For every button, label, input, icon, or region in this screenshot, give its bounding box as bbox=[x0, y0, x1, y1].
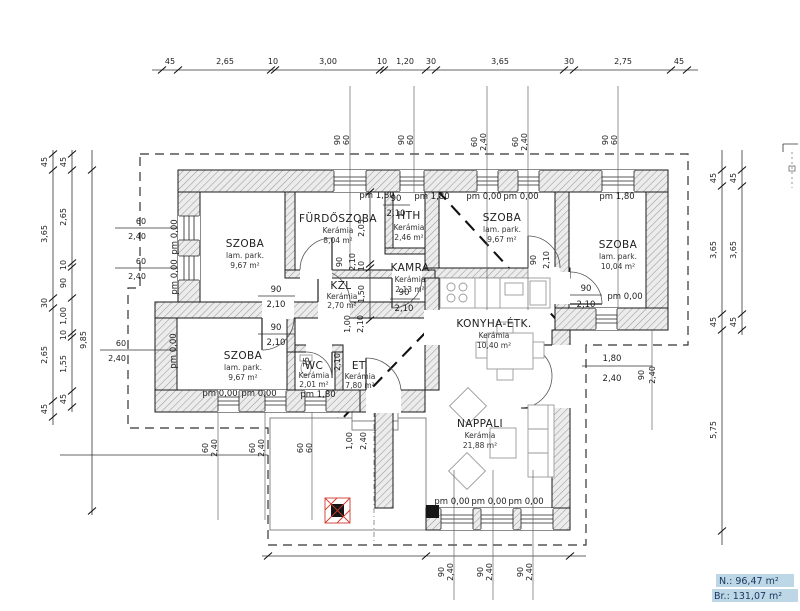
level-mark: pm 0,00 bbox=[508, 497, 543, 507]
terrace bbox=[270, 412, 426, 545]
room-area: 2,46 m² bbox=[394, 233, 423, 242]
dim-label: 9,85 bbox=[79, 331, 88, 349]
door-tag: 2,10 bbox=[267, 338, 286, 348]
dim-label: 1,00 bbox=[59, 307, 68, 325]
floor-plan-page: 45 2,65 10 3,00 10 1,20 30 3,65 30 2,75 … bbox=[0, 0, 800, 611]
room-name: KAMRA bbox=[391, 262, 430, 274]
dimension-chain-left-outer: 45 3,65 30 2,65 45 bbox=[40, 150, 57, 425]
room-area: 2,13 m² bbox=[395, 285, 424, 294]
window-tag: 90 bbox=[476, 567, 485, 577]
window-tag: 60 bbox=[406, 135, 415, 145]
room-finish: lam. park. bbox=[483, 225, 521, 234]
window-tag: 2,40 bbox=[525, 563, 534, 581]
room-area: 21,88 m² bbox=[463, 441, 497, 450]
door-tag: 2,10 bbox=[333, 353, 342, 371]
room-hth: HTH Kerámia 2,46 m² bbox=[394, 210, 425, 242]
door-tag: 90 bbox=[529, 255, 538, 265]
window-tag: 60 bbox=[136, 257, 146, 266]
area-summary: N.: 96,47 m² Br.: 131,07 m² bbox=[712, 574, 798, 602]
dim-label: 10 bbox=[377, 57, 387, 66]
gross-area-value: Br.: 131,07 m² bbox=[714, 591, 782, 602]
dim-label: 5,75 bbox=[709, 421, 718, 439]
window-tag: 60 bbox=[201, 443, 210, 453]
level-mark: pm 1,80 bbox=[300, 390, 335, 400]
wall bbox=[385, 248, 425, 254]
dim-label: 10 bbox=[357, 261, 366, 271]
dim-label: 45 bbox=[40, 157, 49, 167]
window-tag: 2,40 bbox=[128, 272, 146, 281]
level-mark: pm 0,00 bbox=[241, 389, 276, 399]
room-szoba-nw: SZOBA lam. park. 9,67 m² bbox=[226, 238, 265, 270]
dimension-chain-right-outer: 45 3,65 45 bbox=[729, 150, 746, 335]
dim-label: 10 bbox=[59, 260, 68, 270]
door-tag: 90 bbox=[335, 257, 344, 267]
room-area: 9,67 m² bbox=[487, 235, 516, 244]
window-tag: 60 bbox=[610, 135, 619, 145]
level-mark: pm 1,80 bbox=[599, 192, 634, 202]
room-finish: Kerámia bbox=[394, 223, 425, 232]
window-tag: 2,40 bbox=[648, 366, 657, 384]
dim-label: 30 bbox=[426, 57, 436, 66]
dim-label: 3,65 bbox=[491, 57, 509, 66]
window-tag: 2,40 bbox=[108, 354, 126, 363]
room-name: FÜRDŐSZOBA bbox=[299, 211, 377, 225]
room-area: 9,67 m² bbox=[230, 261, 259, 270]
window-tag: 2,40 bbox=[446, 563, 455, 581]
dim-label: 3,00 bbox=[319, 57, 337, 66]
dim-label: 1,55 bbox=[59, 355, 68, 373]
window-tag: 90 bbox=[516, 567, 525, 577]
room-finish: Kerámia bbox=[299, 371, 330, 380]
dim-label: 45 bbox=[709, 317, 718, 327]
level-mark: pm 0,00 bbox=[466, 192, 501, 202]
room-finish: Kerámia bbox=[395, 275, 426, 284]
window-tag: 90 bbox=[397, 135, 406, 145]
dim-label: 45 bbox=[729, 317, 738, 327]
door-tag: 1,00 bbox=[343, 315, 352, 333]
door-tag: 90 bbox=[271, 285, 282, 295]
room-finish: Kerámia bbox=[327, 292, 358, 301]
dim-label: 45 bbox=[674, 57, 684, 66]
dim-label: 3,65 bbox=[40, 225, 49, 243]
room-kzl: KZL Kerámia 2,70 m² bbox=[327, 280, 358, 310]
level-mark: pm 0,00 bbox=[169, 333, 179, 368]
level-mark: pm 0,00 bbox=[434, 497, 469, 507]
door-tag: 2,10 bbox=[348, 253, 357, 271]
window-tag: 60 bbox=[296, 443, 305, 453]
dim-label: 1,20 bbox=[396, 57, 414, 66]
room-finish: Kerámia bbox=[345, 372, 376, 381]
wall bbox=[178, 192, 200, 302]
room-finish: Kerámia bbox=[465, 431, 496, 440]
room-name: ET. bbox=[352, 360, 368, 372]
room-name: NAPPALI bbox=[457, 418, 503, 430]
level-mark: pm 0,00 bbox=[202, 389, 237, 399]
room-name: SZOBA bbox=[226, 238, 265, 250]
window-tag: 60 bbox=[342, 135, 351, 145]
door-tag: 2,10 bbox=[267, 300, 286, 310]
room-area: 10,40 m² bbox=[477, 341, 511, 350]
level-mark: pm 0,00 bbox=[170, 259, 180, 294]
room-kamra: KAMRA Kerámia 2,13 m² bbox=[391, 262, 430, 294]
door-tag: 2,40 bbox=[603, 374, 622, 384]
window-tag: 2,40 bbox=[479, 133, 488, 151]
window-tag: 60 bbox=[305, 443, 314, 453]
dimension-chain-left-overall: 9,85 bbox=[79, 150, 96, 515]
dim-label: 2,75 bbox=[614, 57, 632, 66]
level-mark: pm 0,00 bbox=[170, 219, 180, 254]
room-name: SZOBA bbox=[483, 212, 522, 224]
wall bbox=[285, 192, 295, 270]
detail-mark bbox=[783, 144, 798, 188]
dim-label: 45 bbox=[709, 173, 718, 183]
door-tag: 2,10 bbox=[577, 300, 596, 310]
dim-label: 2,65 bbox=[40, 346, 49, 364]
room-finish: lam. park. bbox=[226, 251, 264, 260]
window-tag: 2,40 bbox=[485, 563, 494, 581]
room-area: 8,04 m² bbox=[323, 236, 352, 245]
dimension-chain-left-mid: 45 2,65 10 90 1,00 10 1,55 45 bbox=[59, 150, 76, 412]
dim-label: 30 bbox=[564, 57, 574, 66]
dim-label: 2,65 bbox=[59, 208, 68, 226]
dim-label: 45 bbox=[165, 57, 175, 66]
room-finish: lam. park. bbox=[224, 363, 262, 372]
room-area: 7,80 m² bbox=[345, 381, 374, 390]
door-tag: 2,10 bbox=[356, 315, 365, 333]
room-finish: lam. park. bbox=[599, 252, 637, 261]
room-name: KONYHA-ÉTK. bbox=[456, 317, 531, 330]
level-mark: pm 0,00 bbox=[503, 192, 538, 202]
dim-label: 10 bbox=[59, 330, 68, 340]
room-szoba-sw: SZOBA lam. park. 9,67 m² bbox=[224, 350, 263, 382]
window-tag: 90 bbox=[437, 567, 446, 577]
room-name: HTH bbox=[397, 210, 420, 222]
window-tag: 60 bbox=[470, 137, 479, 147]
window-tag: 90 bbox=[637, 370, 646, 380]
window-tag: 60 bbox=[136, 217, 146, 226]
room-et: ET. Kerámia 7,80 m² bbox=[345, 360, 376, 390]
wall bbox=[375, 412, 393, 508]
dim-label: 3,65 bbox=[709, 241, 718, 259]
door-tag: 2,10 bbox=[395, 304, 414, 314]
dim-label: 3,65 bbox=[729, 241, 738, 259]
floor-plan-drawing: 45 2,65 10 3,00 10 1,20 30 3,65 30 2,75 … bbox=[0, 0, 800, 611]
level-mark: pm 0,00 bbox=[607, 292, 642, 302]
door-tag: 90 bbox=[271, 323, 282, 333]
window-tag: 2,40 bbox=[210, 439, 219, 457]
door-tag: 1,80 bbox=[603, 354, 622, 364]
window-tag: 2,40 bbox=[257, 439, 266, 457]
room-area: 2,01 m² bbox=[299, 380, 328, 389]
window-tag: 90 bbox=[601, 135, 610, 145]
dim-label: 10 bbox=[268, 57, 278, 66]
door-tag: 2,10 bbox=[542, 251, 551, 269]
net-area-value: N.: 96,47 m² bbox=[719, 576, 779, 587]
dim-label: 90 bbox=[59, 278, 68, 288]
dim-label: 45 bbox=[40, 404, 49, 414]
door-tag: 2,40 bbox=[359, 432, 368, 450]
window-tag: 60 bbox=[511, 137, 520, 147]
door-tag: 90 bbox=[581, 284, 592, 294]
dim-label: 30 bbox=[40, 298, 49, 308]
window-tag: 60 bbox=[248, 443, 257, 453]
dim-label: 1,50 bbox=[357, 285, 366, 303]
dimension-chain-right-inner: 45 3,65 45 5,75 bbox=[709, 150, 726, 545]
room-szoba-n: SZOBA lam. park. 9,67 m² bbox=[483, 212, 522, 244]
window-tag: 60 bbox=[116, 339, 126, 348]
dim-label: 45 bbox=[59, 394, 68, 404]
window-tag: 2,40 bbox=[128, 232, 146, 241]
room-finish: Kerámia bbox=[323, 226, 354, 235]
wall bbox=[287, 352, 295, 390]
room-name: SZOBA bbox=[224, 350, 263, 362]
level-mark: pm 1,80 bbox=[359, 191, 394, 201]
dim-label: 45 bbox=[59, 157, 68, 167]
room-area: 9,67 m² bbox=[228, 373, 257, 382]
kitchen-counter bbox=[440, 278, 550, 308]
dimension-chain-top: 45 2,65 10 3,00 10 1,20 30 3,65 30 2,75 … bbox=[152, 57, 698, 74]
room-name: KZL bbox=[330, 280, 351, 292]
window-tag: 90 bbox=[333, 135, 342, 145]
window-tag: 2,40 bbox=[520, 133, 529, 151]
door-tag: 1,00 bbox=[345, 432, 354, 450]
room-area: 2,70 m² bbox=[327, 301, 356, 310]
room-szoba-ne: SZOBA lam. park. 10,04 m² bbox=[599, 239, 638, 271]
room-area: 10,04 m² bbox=[601, 262, 635, 271]
dim-label: 45 bbox=[729, 173, 738, 183]
dim-label: 2,65 bbox=[216, 57, 234, 66]
room-finish: Kerámia bbox=[479, 331, 510, 340]
room-name: SZOBA bbox=[599, 239, 638, 251]
level-mark: pm 1,80 bbox=[414, 192, 449, 202]
level-mark: pm 0,00 bbox=[471, 497, 506, 507]
